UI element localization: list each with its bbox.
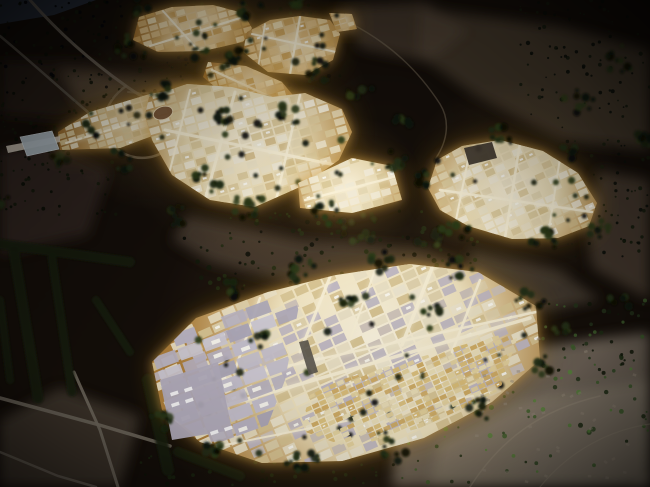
model-scene-canvas [0, 0, 650, 487]
architectural-model-photo [0, 0, 650, 487]
vignette [0, 0, 650, 487]
